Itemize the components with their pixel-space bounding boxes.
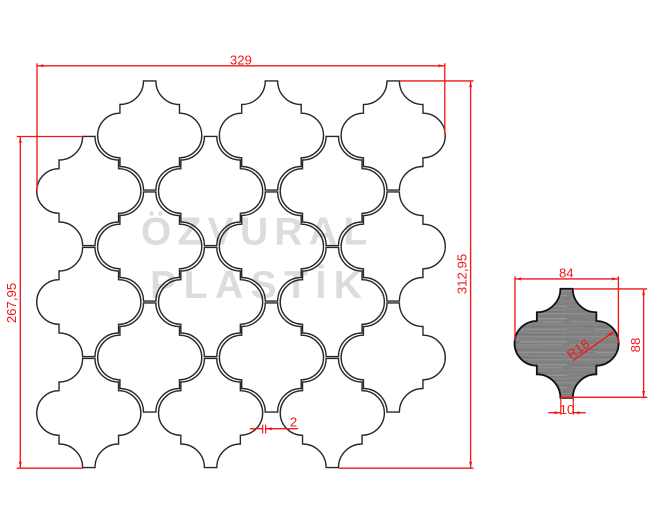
svg-text:84: 84 [559, 265, 574, 280]
svg-text:88: 88 [628, 338, 643, 353]
svg-text:312,95: 312,95 [455, 254, 470, 294]
svg-text:10: 10 [560, 402, 575, 417]
svg-text:267,95: 267,95 [4, 283, 19, 323]
svg-text:2: 2 [290, 414, 297, 429]
svg-text:329: 329 [230, 52, 252, 67]
